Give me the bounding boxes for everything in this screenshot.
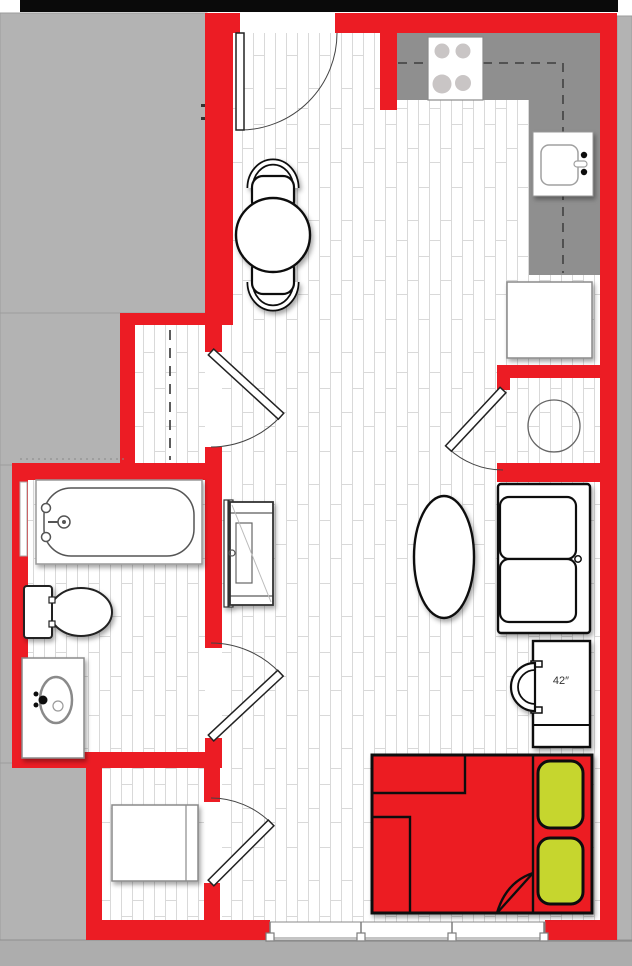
- floor-plan: 42″: [0, 0, 632, 966]
- exterior-strip-left: [0, 465, 14, 763]
- burner-icon: [433, 75, 452, 94]
- sofa-cushion: [500, 497, 576, 559]
- wall: [204, 883, 220, 922]
- door-leaf: [236, 33, 244, 130]
- bathtub-icon: [36, 480, 202, 564]
- tv-size-label: 42″: [553, 675, 569, 687]
- sofa-cushion: [500, 559, 576, 622]
- loveseat-sofa: [498, 484, 590, 633]
- refrigerator-icon: [507, 282, 592, 358]
- bed-pillow: [538, 838, 583, 904]
- wall: [545, 920, 617, 940]
- dresser: [224, 500, 273, 607]
- wall: [12, 463, 222, 480]
- burner-icon: [435, 44, 450, 59]
- shower-wall-strip: [20, 482, 27, 556]
- floor-plan-canvas: 42″: [0, 0, 632, 966]
- wall: [205, 480, 222, 648]
- adjacent-unit-wall-strip: [20, 0, 618, 12]
- storage-unit: [112, 805, 198, 881]
- wall: [380, 33, 397, 110]
- wall: [205, 313, 222, 352]
- kitchen-sink-icon: [533, 132, 593, 196]
- wall: [497, 365, 602, 378]
- exterior-area-mid-left: [0, 313, 122, 465]
- exterior-strip-right: [617, 16, 632, 940]
- burner-icon: [455, 75, 471, 91]
- bed: [372, 755, 592, 913]
- wall: [120, 325, 135, 465]
- wall: [205, 13, 233, 313]
- oval-coffee-table: [414, 496, 474, 618]
- wall: [335, 13, 606, 33]
- exterior-area-top-left: [0, 13, 207, 313]
- wall: [86, 920, 270, 940]
- wall: [86, 768, 102, 922]
- wall: [205, 447, 222, 463]
- exterior-band-bottom: [0, 940, 632, 966]
- dining-set: [236, 162, 310, 308]
- round-dining-table: [236, 198, 310, 272]
- wall: [497, 463, 602, 482]
- wall: [205, 13, 240, 33]
- burner-icon: [456, 44, 471, 59]
- toilet-icon: [24, 586, 112, 638]
- exterior-area-bottom-left: [0, 763, 88, 940]
- bed-pillow: [538, 761, 583, 828]
- wall: [204, 768, 220, 802]
- vanity-sink-icon: [22, 658, 84, 758]
- wall: [600, 13, 617, 940]
- range-icon: [428, 37, 483, 100]
